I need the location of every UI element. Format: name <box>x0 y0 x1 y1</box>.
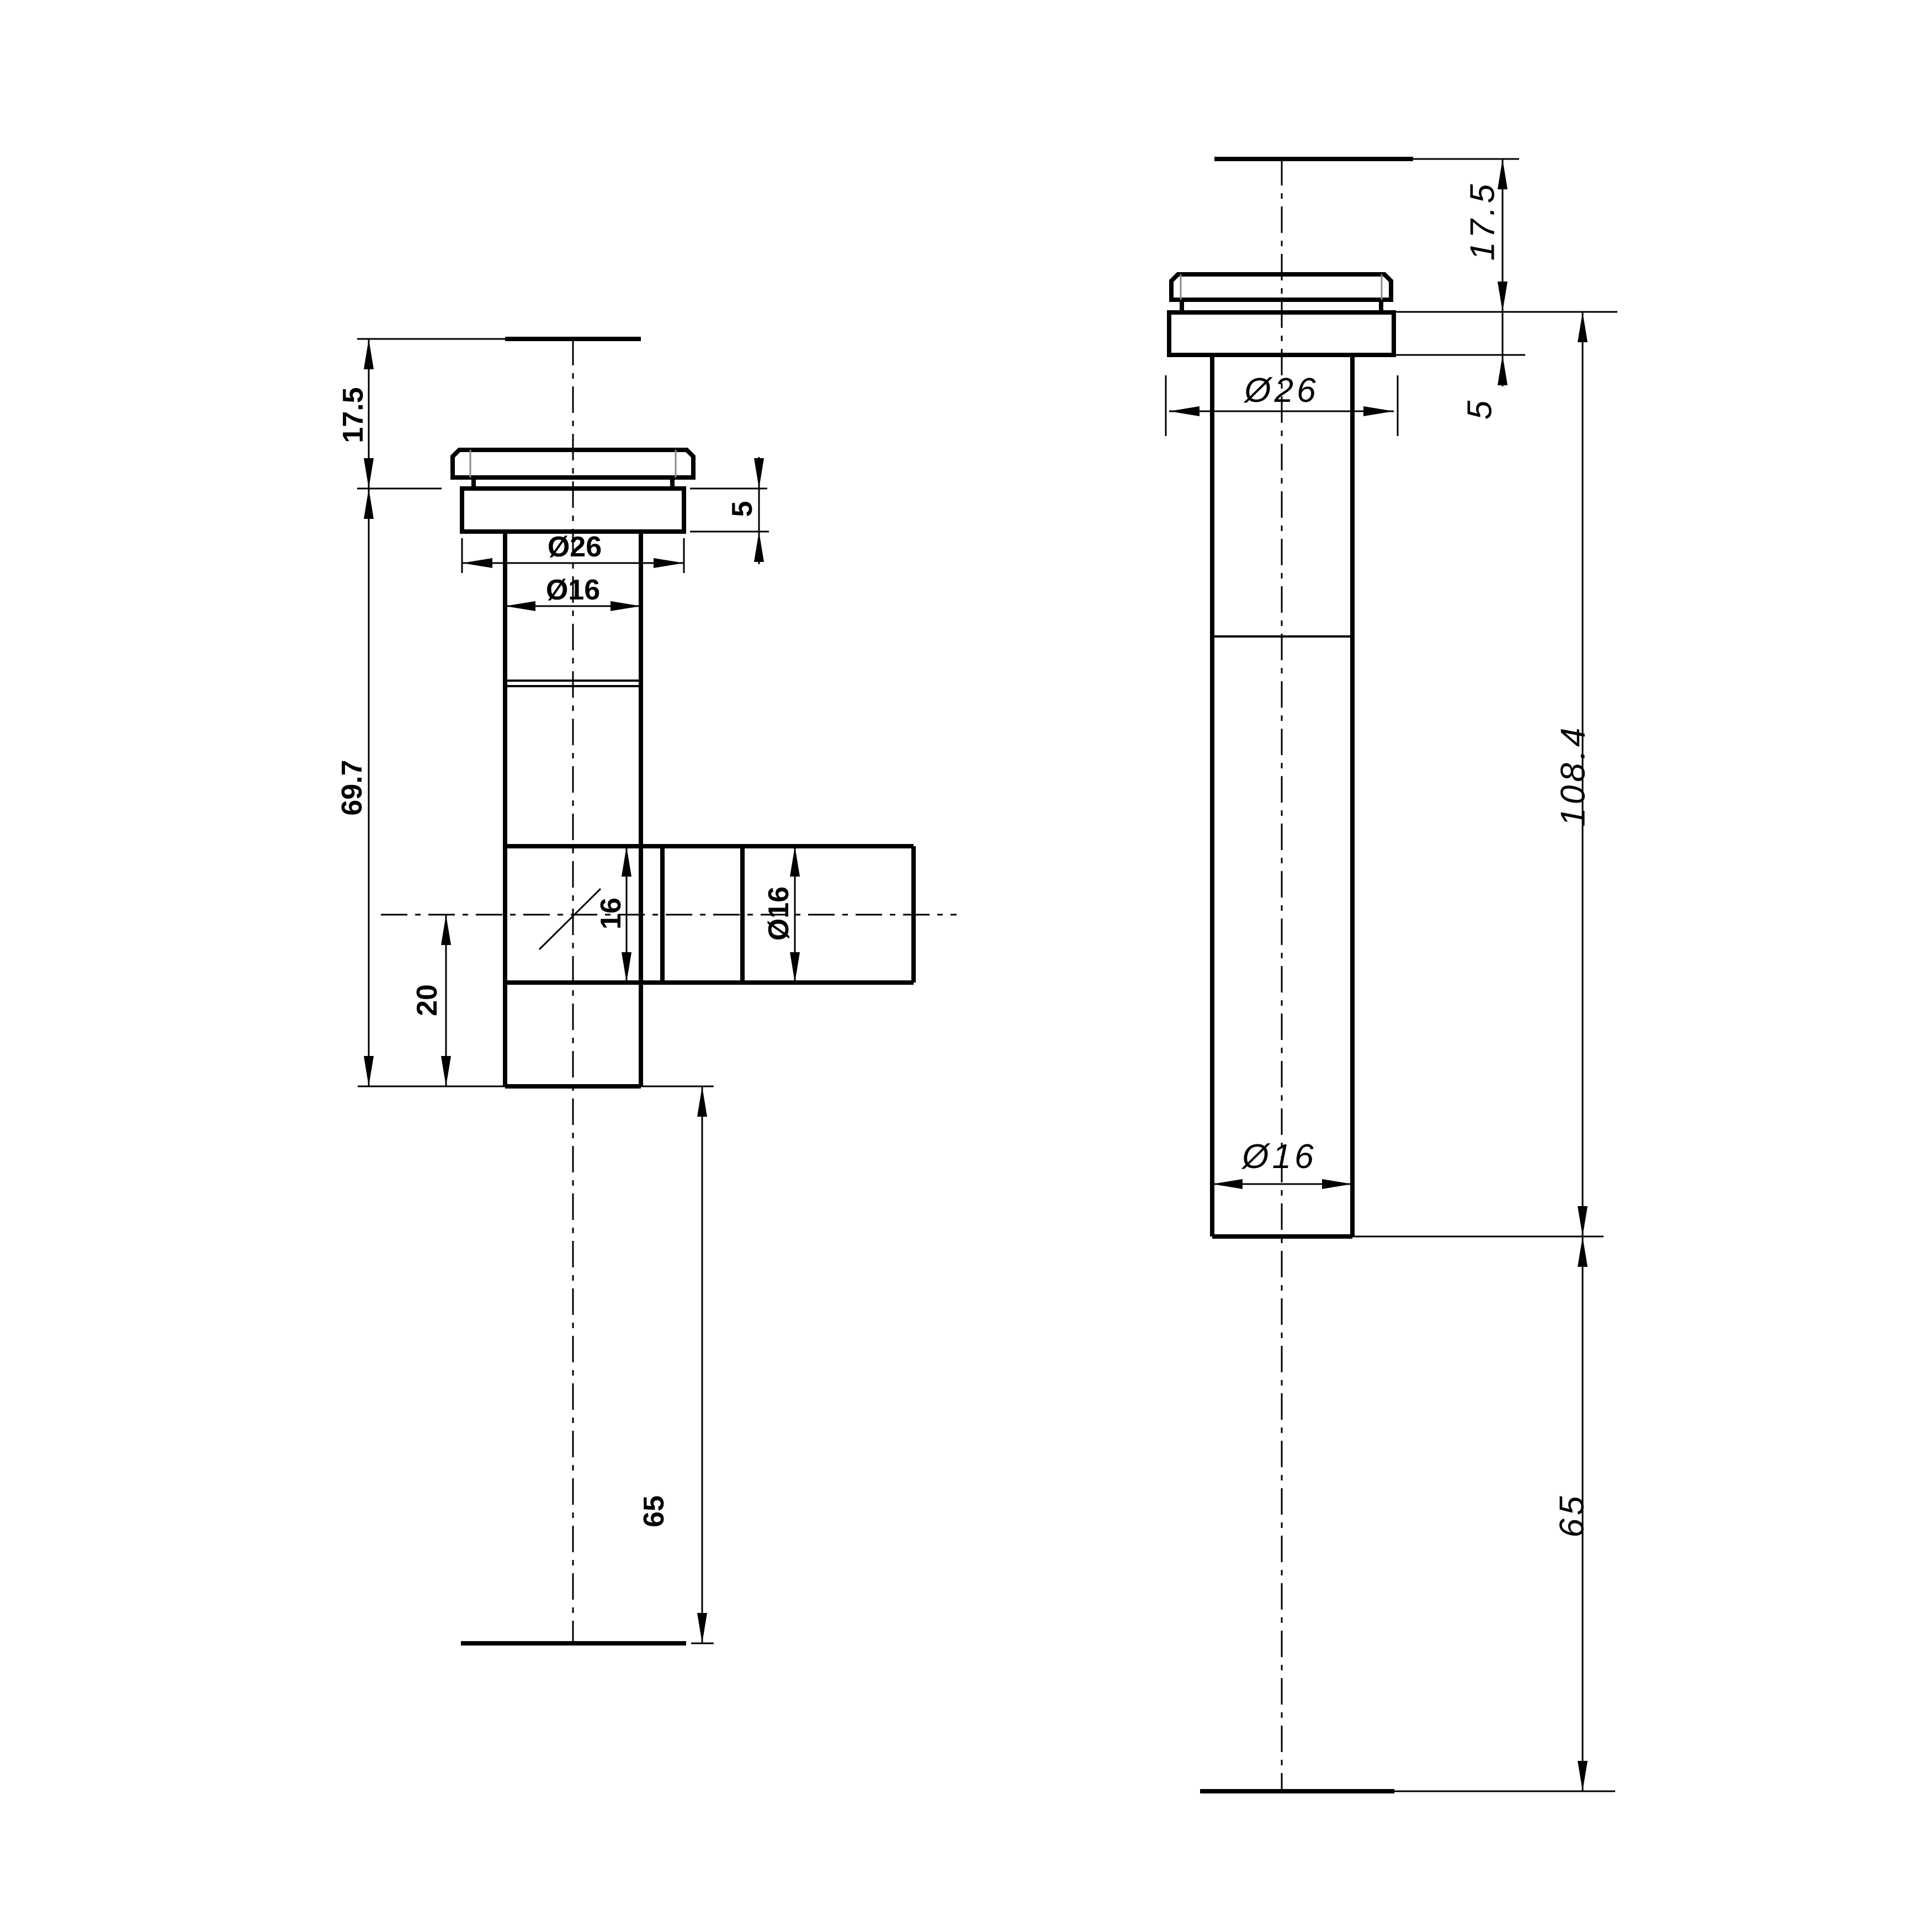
dim-label-right-cap-diameter: Ø26 <box>1243 371 1319 410</box>
right-witness-lines <box>1166 159 1617 1791</box>
dim-label-right-total-length: 108.4 <box>1554 724 1593 826</box>
right-view: 17.5 5 Ø26 Ø16 108.4 65 <box>1166 159 1617 1791</box>
dim-label-left-branch-diameter: Ø16 <box>763 887 795 941</box>
dim-label-right-pipe-diameter: Ø16 <box>1241 1138 1317 1176</box>
dim-label-left-tee-bore: 16 <box>595 898 627 930</box>
left-centerlines <box>381 339 957 1643</box>
technical-drawing-canvas: 17.5 69.7 Ø26 Ø16 5 16 Ø16 20 65 <box>0 0 1932 1932</box>
dim-label-left-tail-length: 65 <box>638 1495 670 1527</box>
right-dimension-labels: 17.5 5 Ø26 Ø16 108.4 65 <box>1241 181 1592 1538</box>
left-part-outline <box>453 339 914 1643</box>
dim-label-right-flange-height: 5 <box>1461 397 1499 420</box>
dim-label-left-cap-height: 17.5 <box>337 387 369 443</box>
left-flat-indicator-diagonal <box>539 889 601 949</box>
right-arrowheads <box>1169 159 1588 1791</box>
dim-label-left-flange-height: 5 <box>726 501 758 517</box>
dim-label-right-cap-height: 17.5 <box>1464 181 1502 261</box>
right-dimension-lines <box>1169 159 1583 1791</box>
dim-label-left-branch-offset: 20 <box>411 984 443 1016</box>
left-view: 17.5 69.7 Ø26 Ø16 5 16 Ø16 20 65 <box>336 339 957 1643</box>
left-dimension-labels: 17.5 69.7 Ø26 Ø16 5 16 Ø16 20 65 <box>336 387 795 1527</box>
dim-label-right-tail-length: 65 <box>1553 1493 1591 1538</box>
dim-label-left-cap-diameter: Ø26 <box>548 531 602 563</box>
dim-label-left-pipe-diameter: Ø16 <box>546 574 600 606</box>
dim-label-left-body-length: 69.7 <box>336 760 368 815</box>
